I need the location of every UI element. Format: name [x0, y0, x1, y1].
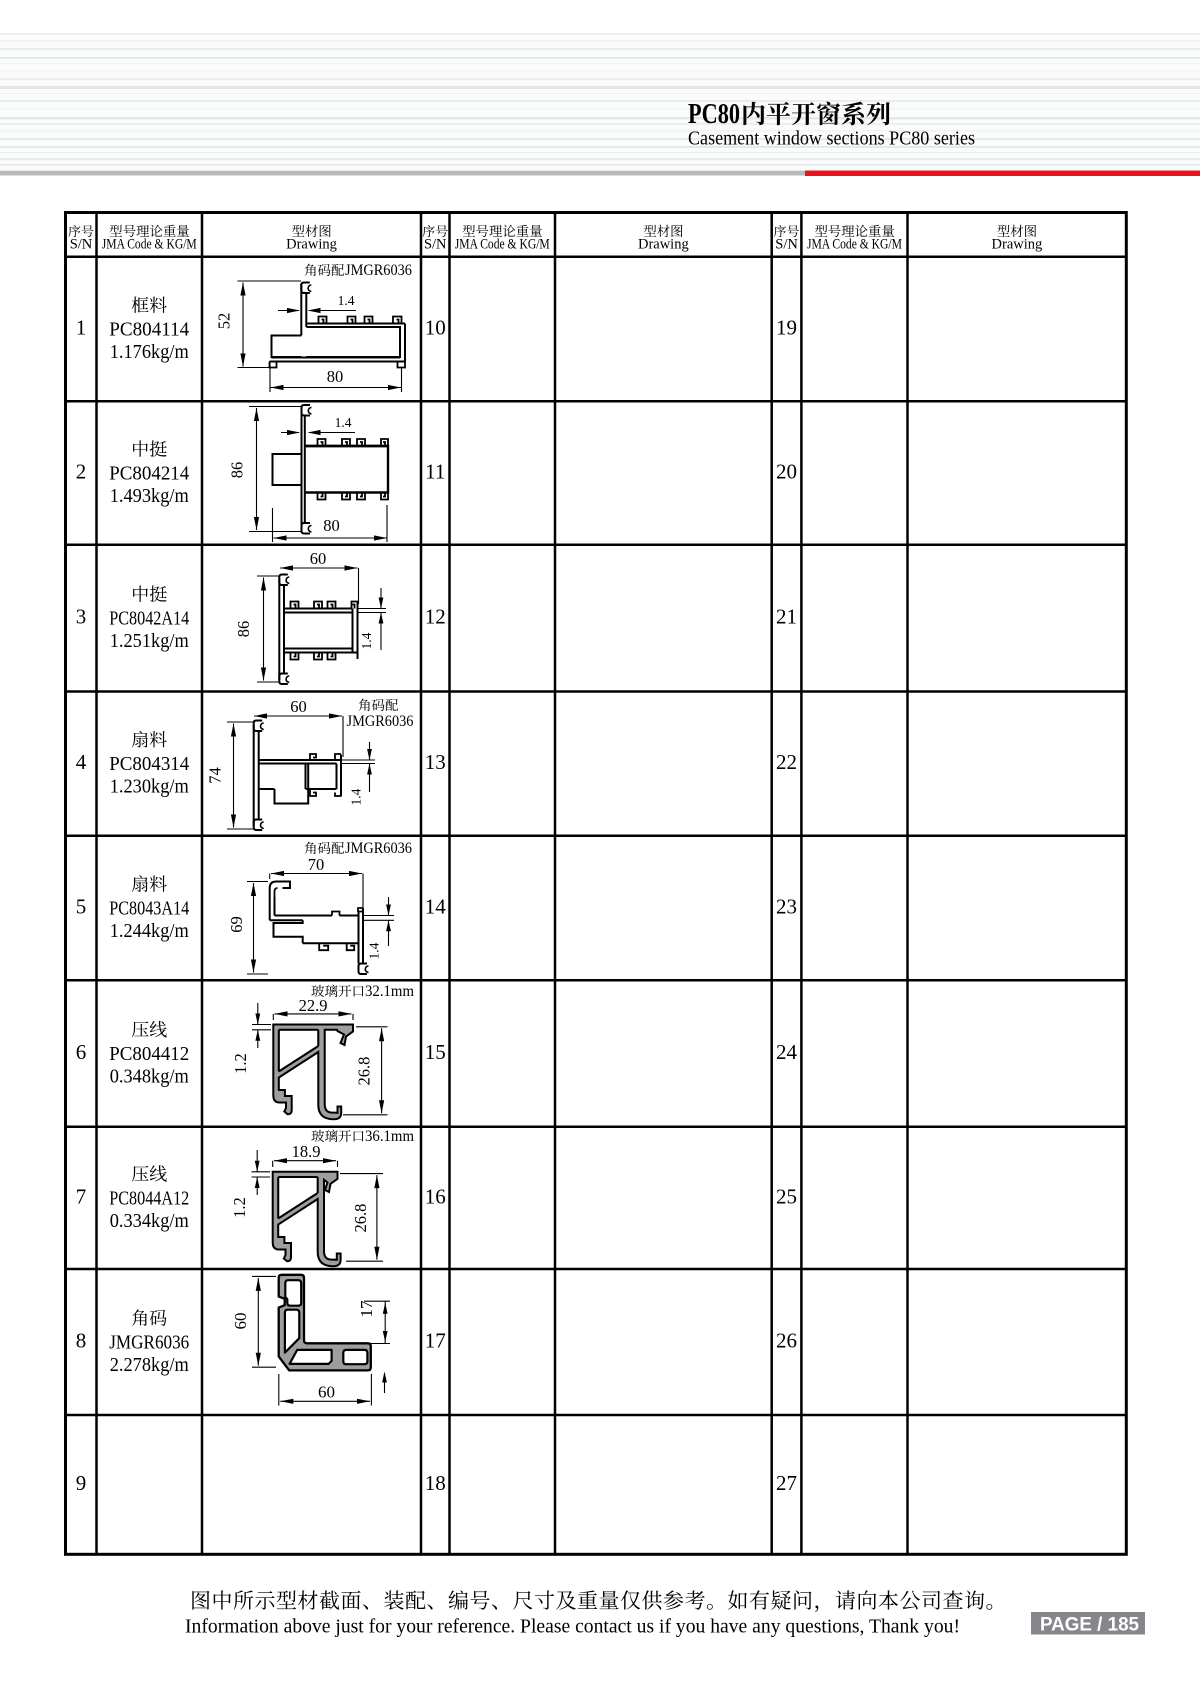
svg-text:PC804314: PC804314 — [109, 753, 189, 775]
svg-text:PC804214: PC804214 — [109, 463, 189, 485]
svg-text:22.9: 22.9 — [299, 996, 328, 1015]
svg-text:22: 22 — [776, 750, 797, 774]
svg-text:24: 24 — [776, 1040, 798, 1064]
svg-text:PC804114: PC804114 — [109, 319, 189, 341]
svg-text:16: 16 — [425, 1184, 446, 1208]
svg-text:1.4: 1.4 — [335, 415, 352, 430]
svg-text:11: 11 — [425, 460, 445, 484]
svg-text:27: 27 — [776, 1471, 797, 1495]
svg-text:23: 23 — [776, 895, 797, 919]
svg-text:JMGR6036: JMGR6036 — [109, 1332, 189, 1354]
svg-text:PAGE / 185: PAGE / 185 — [1040, 1614, 1139, 1636]
svg-text:80: 80 — [323, 516, 340, 535]
svg-text:13: 13 — [425, 750, 446, 774]
svg-text:Casement window sections PC80: Casement window sections PC80 series — [688, 128, 975, 150]
svg-text:17: 17 — [357, 1300, 376, 1318]
svg-text:PC804412: PC804412 — [109, 1043, 189, 1065]
svg-text:18.9: 18.9 — [292, 1142, 321, 1161]
svg-text:1: 1 — [76, 316, 87, 340]
svg-text:14: 14 — [425, 895, 447, 919]
svg-text:2.278kg/m: 2.278kg/m — [110, 1354, 189, 1376]
svg-text:1.2: 1.2 — [230, 1197, 249, 1218]
svg-text:8: 8 — [76, 1329, 87, 1353]
svg-text:10: 10 — [425, 316, 446, 340]
svg-text:80: 80 — [327, 367, 344, 386]
svg-text:S/N: S/N — [424, 237, 447, 253]
svg-text:86: 86 — [234, 621, 253, 638]
svg-text:26: 26 — [776, 1329, 797, 1353]
svg-text:12: 12 — [425, 605, 446, 629]
svg-text:JMGR6036: JMGR6036 — [347, 713, 414, 730]
svg-text:PC8044A12: PC8044A12 — [109, 1187, 189, 1209]
svg-text:1.493kg/m: 1.493kg/m — [110, 485, 189, 507]
svg-text:1.251kg/m: 1.251kg/m — [110, 630, 189, 652]
svg-text:3: 3 — [76, 605, 87, 629]
svg-text:1.4: 1.4 — [359, 632, 374, 649]
svg-text:JMA Code & KG/M: JMA Code & KG/M — [455, 237, 550, 253]
svg-text:26.8: 26.8 — [351, 1204, 370, 1233]
svg-text:1.4: 1.4 — [338, 293, 355, 308]
svg-text:15: 15 — [425, 1040, 446, 1064]
svg-text:18: 18 — [425, 1471, 446, 1495]
svg-text:2: 2 — [76, 460, 87, 484]
svg-text:86: 86 — [228, 462, 247, 479]
svg-text:26.8: 26.8 — [355, 1057, 374, 1086]
svg-text:JMGR6036: JMGR6036 — [345, 840, 412, 857]
svg-text:S/N: S/N — [70, 237, 93, 253]
svg-text:PC8043A14: PC8043A14 — [109, 898, 189, 920]
svg-text:20: 20 — [776, 460, 797, 484]
svg-text:74: 74 — [206, 767, 225, 784]
svg-text:1.244kg/m: 1.244kg/m — [110, 920, 189, 942]
svg-text:25: 25 — [776, 1184, 797, 1208]
svg-text:JMA Code & KG/M: JMA Code & KG/M — [102, 237, 197, 253]
svg-text:69: 69 — [227, 916, 246, 933]
svg-text:4: 4 — [76, 750, 87, 774]
svg-text:Drawing: Drawing — [992, 237, 1043, 253]
svg-text:7: 7 — [76, 1184, 87, 1208]
svg-text:9: 9 — [76, 1471, 87, 1495]
svg-text:1.4: 1.4 — [349, 788, 364, 805]
svg-text:1.2: 1.2 — [231, 1053, 250, 1074]
svg-text:Drawing: Drawing — [638, 237, 689, 253]
svg-text:Drawing: Drawing — [286, 237, 337, 253]
svg-text:60: 60 — [318, 1383, 335, 1402]
svg-text:0.334kg/m: 0.334kg/m — [110, 1210, 189, 1232]
svg-text:S/N: S/N — [775, 237, 798, 253]
svg-text:36.1mm: 36.1mm — [365, 1128, 414, 1145]
svg-text:PC8042A14: PC8042A14 — [109, 608, 189, 630]
svg-text:60: 60 — [310, 549, 327, 568]
svg-text:32.1mm: 32.1mm — [365, 983, 414, 1000]
svg-text:52: 52 — [215, 313, 234, 330]
svg-text:Information above just for you: Information above just for your referenc… — [185, 1616, 960, 1638]
svg-text:1.230kg/m: 1.230kg/m — [110, 776, 189, 798]
svg-text:70: 70 — [308, 855, 325, 874]
svg-text:PC80: PC80 — [688, 99, 740, 130]
svg-text:JMGR6036: JMGR6036 — [345, 262, 412, 279]
svg-text:1.176kg/m: 1.176kg/m — [110, 341, 189, 363]
svg-text:6: 6 — [76, 1040, 87, 1064]
svg-text:5: 5 — [76, 895, 87, 919]
svg-text:60: 60 — [290, 697, 307, 716]
svg-text:60: 60 — [231, 1313, 250, 1330]
svg-text:17: 17 — [425, 1329, 446, 1353]
svg-text:21: 21 — [776, 605, 797, 629]
svg-text:JMA Code & KG/M: JMA Code & KG/M — [807, 237, 902, 253]
svg-text:1.4: 1.4 — [367, 942, 382, 959]
svg-text:19: 19 — [776, 316, 797, 340]
svg-text:0.348kg/m: 0.348kg/m — [110, 1066, 189, 1088]
